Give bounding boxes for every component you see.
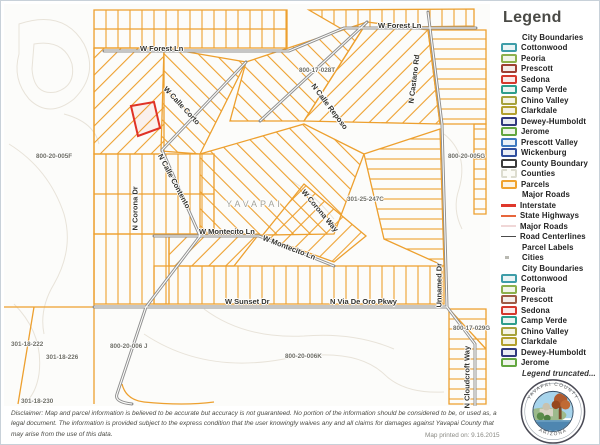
map-label-p005g: 800-20-005G: [448, 153, 485, 160]
legend-item-dewey-humboldt: Dewey-Humboldt: [501, 116, 597, 127]
legend-label: Counties: [521, 169, 555, 178]
legend-swatch-box: [501, 285, 517, 294]
legend-label: Parcels: [521, 180, 549, 189]
map-label-p222: 301-18-222: [11, 341, 43, 348]
map-label-yavapai: YAVAPAI: [226, 199, 283, 209]
legend-label: Prescott Valley: [521, 138, 578, 147]
legend-swatch-box: [501, 180, 517, 189]
legend-swatch-box: [501, 138, 517, 147]
legend-label: Wickenburg: [521, 148, 567, 157]
map-label-sunset: W Sunset Dr: [225, 297, 270, 306]
legend-item-chino-valley: Chino Valley: [501, 326, 597, 337]
legend-item-chino-valley: Chino Valley: [501, 95, 597, 106]
legend-label: Cottonwood: [521, 43, 567, 52]
legend-item-state-highways: State Highways: [501, 211, 597, 222]
map-label-p028t: 800-17-028T: [299, 67, 335, 74]
legend-label: Camp Verde: [521, 85, 567, 94]
legend-item-city-boundaries: City Boundaries: [501, 263, 597, 274]
legend-label: Chino Valley: [521, 327, 569, 336]
legend-label: County Boundary: [521, 159, 588, 168]
legend-item-prescott: Prescott: [501, 295, 597, 306]
legend-panel: Legend City BoundariesCottonwoodPeoriaPr…: [495, 7, 597, 379]
legend-label: Jerome: [521, 127, 549, 136]
legend-label: Dewey-Humboldt: [521, 348, 586, 357]
legend-swatch-box: [501, 159, 517, 168]
legend-swatch-box: [501, 337, 517, 346]
legend-item-prescott-valley: Prescott Valley: [501, 137, 597, 148]
legend-swatch-box: [501, 106, 517, 115]
map-label-p226: 301-18-226: [46, 354, 78, 361]
legend-item-parcels: Parcels: [501, 179, 597, 190]
legend-label: Road Centerlines: [520, 232, 586, 241]
legend-swatch-dot: [505, 256, 509, 259]
legend-label: Peoria: [521, 54, 545, 63]
map-label-cloudcroft: N Cloudcroft Way: [463, 346, 472, 409]
county-seal: YAVAPAI COUNTY ARIZONA: [513, 377, 593, 444]
legend-label: Sedona: [521, 75, 550, 84]
legend-swatch-box: [501, 169, 517, 178]
legend-item-cottonwood: Cottonwood: [501, 274, 597, 285]
legend-label: Major Roads: [522, 190, 570, 199]
legend-swatch-line: [501, 204, 516, 207]
legend-swatch-box: [501, 295, 517, 304]
map-label-unnamed: Unnamed Dr: [435, 263, 444, 308]
print-date: Map printed on: 9.16.2015: [425, 432, 500, 439]
legend-label: Cottonwood: [521, 274, 567, 283]
legend-item-road-centerlines: Road Centerlines: [501, 232, 597, 243]
map-label-p230: 301-18-230: [21, 398, 53, 405]
map-canvas[interactable]: W Forest LnW Forest Ln800-17-028TN Casta…: [4, 4, 490, 406]
legend-item-cities: Cities: [501, 253, 597, 264]
legend-item-major-roads: Major Roads: [501, 190, 597, 201]
legend-swatch-box: [501, 64, 517, 73]
legend-item-counties: Counties: [501, 169, 597, 180]
map-label-mont1: W Montecito Ln: [199, 227, 255, 236]
legend-swatch-box: [501, 274, 517, 283]
legend-item-interstate: Interstate: [501, 200, 597, 211]
legend-item-jerome: Jerome: [501, 127, 597, 138]
legend-label: Parcel Labels: [522, 243, 574, 252]
map-label-coronadr: N Corona Dr: [131, 186, 140, 230]
legend-item-prescott: Prescott: [501, 64, 597, 75]
legend-label: Peoria: [521, 285, 545, 294]
legend-item-city-boundaries: City Boundaries: [501, 32, 597, 43]
legend-item-major-roads: Major Roads: [501, 221, 597, 232]
legend-swatch-box: [501, 85, 517, 94]
legend-swatch-box: [501, 127, 517, 136]
legend-label: Major Roads: [520, 222, 568, 231]
legend-swatch-box: [501, 75, 517, 84]
legend-swatch-line: [501, 236, 516, 237]
legend-item-county-boundary: County Boundary: [501, 158, 597, 169]
legend-item-camp-verde: Camp Verde: [501, 85, 597, 96]
legend-label: Prescott: [521, 295, 553, 304]
legend-label: State Highways: [520, 211, 579, 220]
legend-swatch-box: [501, 148, 517, 157]
map-document: W Forest LnW Forest Ln800-17-028TN Casta…: [0, 0, 600, 445]
legend-title: Legend: [503, 9, 597, 27]
legend-item-clarkdale: Clarkdale: [501, 106, 597, 117]
legend-label: City Boundaries: [522, 264, 583, 273]
legend-label: Interstate: [520, 201, 556, 210]
legend-swatch-box: [501, 358, 517, 367]
legend-label: Clarkdale: [521, 106, 557, 115]
legend-label: Prescott: [521, 64, 553, 73]
legend-item-camp-verde: Camp Verde: [501, 316, 597, 327]
legend-item-peoria: Peoria: [501, 53, 597, 64]
map-label-forest2: W Forest Ln: [378, 21, 421, 30]
legend-swatch-box: [501, 117, 517, 126]
legend-item-cottonwood: Cottonwood: [501, 43, 597, 54]
legend-item-wickenburg: Wickenburg: [501, 148, 597, 159]
legend-label: Cities: [522, 253, 544, 262]
map-label-p029g: 800-17-029G: [453, 325, 490, 332]
map-label-p006k: 800-20-006K: [285, 353, 322, 360]
legend-swatch-box: [501, 54, 517, 63]
legend-items: City BoundariesCottonwoodPeoriaPrescottS…: [495, 32, 597, 379]
legend-swatch-box: [501, 316, 517, 325]
legend-label: Dewey-Humboldt: [521, 117, 586, 126]
legend-swatch-box: [501, 43, 517, 52]
legend-item-sedona: Sedona: [501, 74, 597, 85]
map-label-viadeoro: N Via De Oro Pkwy: [330, 297, 397, 306]
map-label-p006j: 800-20-006 J: [110, 343, 147, 350]
legend-swatch-line: [501, 225, 516, 227]
legend-item-sedona: Sedona: [501, 305, 597, 316]
legend-item-jerome: Jerome: [501, 358, 597, 369]
legend-label: Clarkdale: [521, 337, 557, 346]
legend-label: City Boundaries: [522, 33, 583, 42]
map-label-forest1: W Forest Ln: [140, 44, 183, 53]
legend-item-clarkdale: Clarkdale: [501, 337, 597, 348]
map-label-p005f: 800-20-005F: [36, 153, 72, 160]
legend-item-dewey-humboldt: Dewey-Humboldt: [501, 347, 597, 358]
legend-label: Chino Valley: [521, 96, 569, 105]
legend-swatch-box: [501, 327, 517, 336]
legend-swatch-box: [501, 348, 517, 357]
legend-item-parcel-labels: Parcel Labels: [501, 242, 597, 253]
legend-label: Camp Verde: [521, 316, 567, 325]
legend-label: Sedona: [521, 306, 550, 315]
legend-swatch-box: [501, 96, 517, 105]
legend-swatch-box: [501, 306, 517, 315]
legend-label: Jerome: [521, 358, 549, 367]
legend-swatch-line: [501, 215, 516, 217]
map-label-p247c: 301-25-247C: [347, 196, 384, 203]
legend-item-peoria: Peoria: [501, 284, 597, 295]
